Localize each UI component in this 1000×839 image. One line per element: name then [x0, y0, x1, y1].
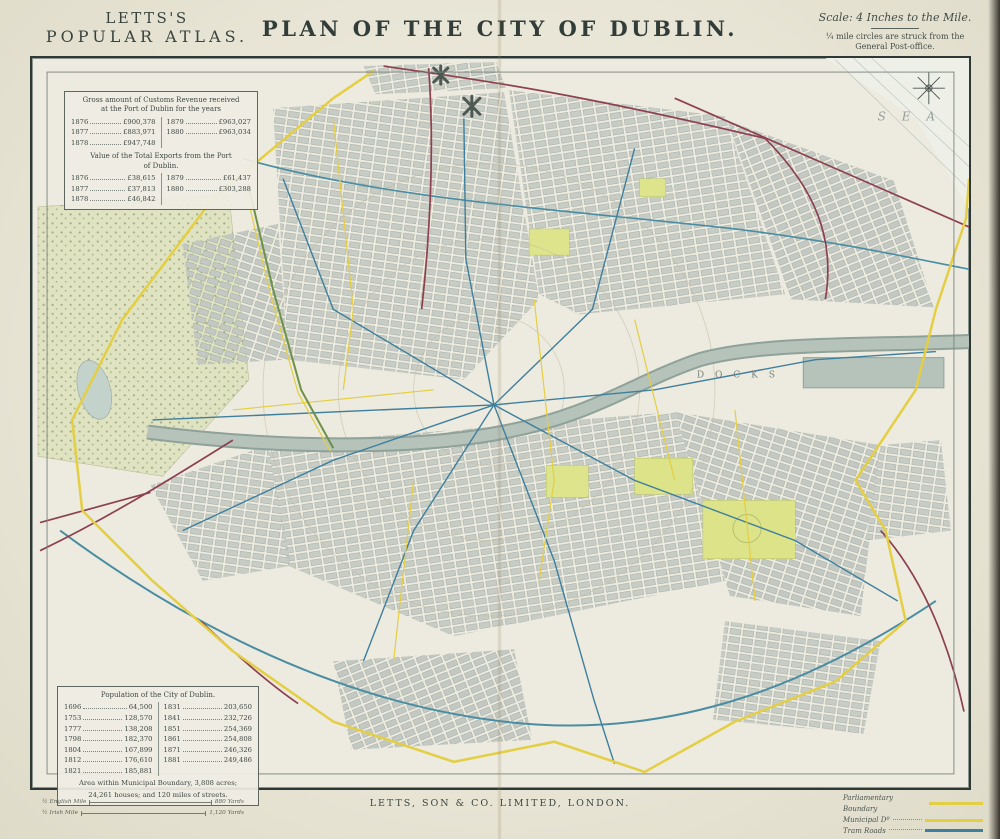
table-cell [186, 179, 221, 180]
scale-bar-end-label: 1,120 Yards [209, 808, 244, 819]
customs-right-column: 1879£963,0271880£963,034 [161, 117, 252, 149]
table-cell: 1877 [71, 184, 88, 195]
table-row: 1804167,899 [64, 745, 153, 756]
table-row: 1879£963,027 [167, 117, 252, 128]
table-cell: 1871 [164, 745, 181, 756]
table-cell: £303,288 [219, 184, 251, 195]
table-row: 1880£303,288 [167, 184, 252, 195]
table-cell: £947,748 [123, 138, 155, 149]
legend-label: Municipal Dº [843, 815, 890, 826]
table-cell [186, 123, 217, 124]
table-cell [83, 772, 122, 773]
table-row: 1878£947,748 [71, 138, 156, 149]
table-cell: 1876 [71, 173, 88, 184]
table-cell: £883,971 [123, 127, 155, 138]
table-cell: £61,437 [223, 173, 251, 184]
table-cell: 1881 [164, 755, 181, 766]
table-cell [90, 123, 121, 124]
docks-label: D O C K S [697, 371, 779, 381]
table-row: 1876£900,378 [71, 117, 156, 128]
table-cell: £38,615 [127, 173, 155, 184]
table-cell [183, 730, 222, 731]
table-row: 1876£38,615 [71, 173, 156, 184]
table-row: 1812176,610 [64, 755, 153, 766]
scale-note: Scale: 4 Inches to the Mile. [806, 11, 984, 24]
table-cell [90, 200, 125, 201]
table-cell [83, 761, 122, 762]
table-row: 1881249,486 [164, 755, 253, 766]
table-row: 1777138,208 [64, 724, 153, 735]
legend-item: Tram Roads [843, 826, 983, 837]
population-box: Population of the City of Dublin. 169664… [57, 686, 259, 806]
customs-title-2: at the Port of Dublin for the years [71, 105, 251, 114]
map-legend: Parliamentary BoundaryMunicipal DºTram R… [843, 793, 983, 836]
table-cell [90, 133, 121, 134]
table-row: 1877£883,971 [71, 127, 156, 138]
table-cell [183, 708, 222, 709]
table-cell: 176,610 [124, 755, 152, 766]
table-cell: 185,881 [124, 766, 152, 777]
legend-leader [889, 829, 922, 830]
legend-line-swatch [929, 802, 983, 805]
table-cell: 1879 [167, 117, 184, 128]
legend-line-swatch [925, 819, 983, 822]
atlas-line1: LETTS'S [36, 9, 258, 27]
table-row: 1861254,808 [164, 734, 253, 745]
table-cell: £963,027 [219, 117, 251, 128]
table-cell [83, 730, 122, 731]
scale-bar-end-label: 880 Yards [215, 797, 244, 808]
table-cell: £46,842 [127, 194, 155, 205]
scale-bar-label: ½ Irish Mile [42, 808, 78, 819]
table-row: 1871246,326 [164, 745, 253, 756]
table-cell: 1753 [64, 713, 81, 724]
legend-line-swatch [925, 829, 983, 832]
scale-divider [871, 28, 919, 29]
table-cell: 203,650 [224, 702, 252, 713]
table-cell [83, 751, 122, 752]
population-title: Population of the City of Dublin. [64, 691, 252, 700]
table-cell: 1851 [164, 724, 181, 735]
table-cell [183, 719, 222, 720]
page-edge-shadow [988, 0, 1000, 839]
exports-right-column: 1879£61,4371880£303,288 [161, 173, 252, 205]
table-cell: 1821 [64, 766, 81, 777]
table-cell: 128,570 [124, 713, 152, 724]
table-row: 1877£37,813 [71, 184, 156, 195]
table-cell: 246,326 [224, 745, 252, 756]
circles-note-1: ¼ mile circles are struck from the [806, 32, 984, 42]
circles-note-2: General Post-office. [806, 42, 984, 52]
table-cell: 1861 [164, 734, 181, 745]
population-right-column: 1831203,6501841232,7261851254,3691861254… [158, 702, 253, 776]
scale-bars: ½ English Mile880 Yards½ Irish Mile1,120… [42, 797, 244, 819]
table-row: 1878£46,842 [71, 194, 156, 205]
scale-bar-row: ½ English Mile880 Yards [42, 797, 244, 808]
table-cell: 1777 [64, 724, 81, 735]
table-cell: £37,813 [127, 184, 155, 195]
table-cell [183, 740, 222, 741]
population-left-column: 169664,5001753128,5701777138,2081798182,… [64, 702, 153, 776]
table-cell: 1841 [164, 713, 181, 724]
table-cell: 1878 [71, 194, 88, 205]
scale-bar-row: ½ Irish Mile1,120 Yards [42, 808, 244, 819]
table-row: 1880£963,034 [167, 127, 252, 138]
table-cell [83, 740, 122, 741]
table-cell [83, 708, 126, 709]
table-cell [186, 133, 217, 134]
table-row: 1821185,881 [64, 766, 153, 777]
table-cell: 1877 [71, 127, 88, 138]
table-cell: 1696 [64, 702, 81, 713]
table-cell [90, 144, 121, 145]
table-cell: 1878 [71, 138, 88, 149]
table-cell: 138,208 [124, 724, 152, 735]
table-cell [183, 761, 222, 762]
legend-leader [893, 819, 922, 820]
table-cell: 249,486 [224, 755, 252, 766]
fold-crease [497, 0, 502, 839]
table-cell: 1804 [64, 745, 81, 756]
scale-bar-label: ½ English Mile [42, 797, 86, 808]
exports-title-1: Value of the Total Exports from the Port [71, 152, 251, 161]
atlas-page: LETTS'S POPULAR ATLAS. PLAN OF THE CITY … [0, 0, 1000, 839]
customs-title-1: Gross amount of Customs Revenue received [71, 96, 251, 105]
table-cell [83, 719, 122, 720]
table-row: 169664,500 [64, 702, 153, 713]
area-line-1: Area within Municipal Boundary, 3,808 ac… [64, 778, 252, 788]
table-row: 1879£61,437 [167, 173, 252, 184]
table-cell: £900,378 [123, 117, 155, 128]
table-row: 1831203,650 [164, 702, 253, 713]
legend-item: Parliamentary Boundary [843, 793, 983, 815]
table-cell: 64,500 [129, 702, 153, 713]
table-row: 1753128,570 [64, 713, 153, 724]
scale-note-block: Scale: 4 Inches to the Mile. ¼ mile circ… [806, 11, 984, 53]
table-cell: 1876 [71, 117, 88, 128]
table-cell: 1798 [64, 734, 81, 745]
table-cell: 1812 [64, 755, 81, 766]
table-cell: 1880 [167, 184, 184, 195]
table-cell: 254,369 [224, 724, 252, 735]
legend-label: Parliamentary Boundary [843, 793, 923, 815]
table-cell [90, 179, 125, 180]
table-cell: 167,899 [124, 745, 152, 756]
scale-bar-line [81, 813, 206, 814]
sea-label: S E A [878, 109, 942, 123]
table-cell: 254,808 [224, 734, 252, 745]
table-cell: £963,034 [219, 127, 251, 138]
scale-bar-line [89, 802, 211, 803]
customs-left-column: 1876£900,3781877£883,9711878£947,748 [71, 117, 156, 149]
legend-item: Municipal Dº [843, 815, 983, 826]
table-cell [186, 190, 217, 191]
table-cell [90, 190, 125, 191]
exports-title-2: of Dublin. [71, 162, 251, 171]
table-cell [183, 751, 222, 752]
legend-label: Tram Roads [843, 826, 886, 837]
atlas-line2: POPULAR ATLAS. [36, 27, 258, 46]
customs-revenue-box: Gross amount of Customs Revenue received… [64, 91, 258, 210]
atlas-name: LETTS'S POPULAR ATLAS. [36, 9, 258, 46]
table-row: 1841232,726 [164, 713, 253, 724]
table-cell: 1880 [167, 127, 184, 138]
table-row: 1851254,369 [164, 724, 253, 735]
table-cell: 232,726 [224, 713, 252, 724]
table-cell: 182,370 [124, 734, 152, 745]
exports-left-column: 1876£38,6151877£37,8131878£46,842 [71, 173, 156, 205]
table-cell: 1879 [167, 173, 184, 184]
table-row: 1798182,370 [64, 734, 153, 745]
table-cell: 1831 [164, 702, 181, 713]
